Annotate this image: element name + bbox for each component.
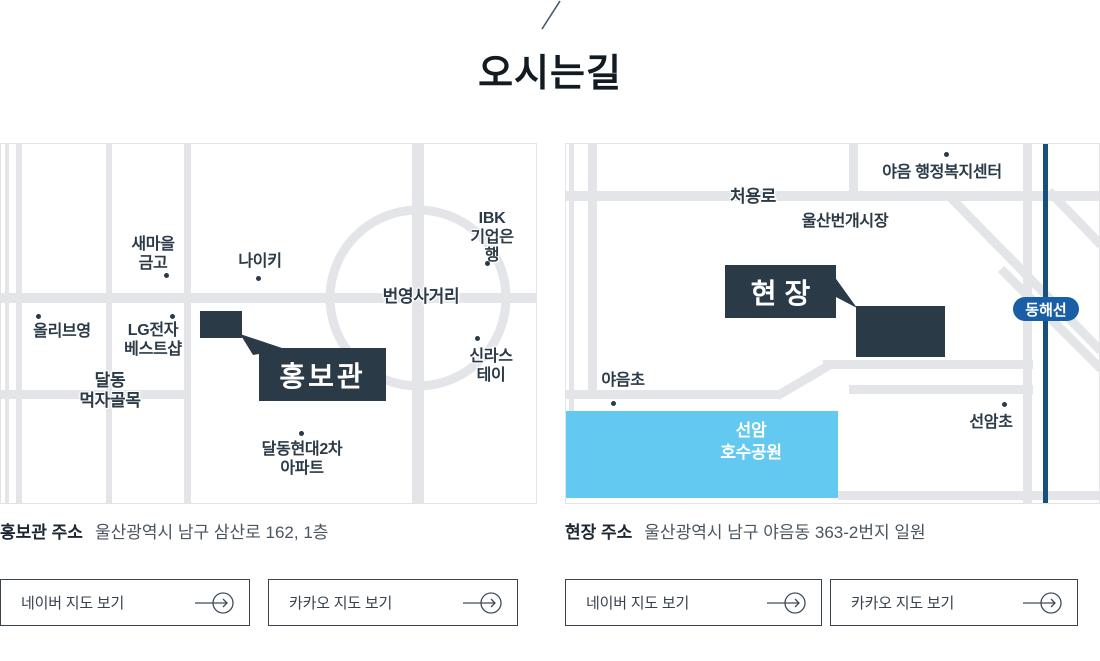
- poi-dot: [475, 336, 480, 341]
- page-title: 오시는길: [0, 42, 1100, 97]
- landmark-shilla-stay: 신라스테이: [469, 348, 514, 385]
- poi-dot: [36, 314, 41, 319]
- road-vertical: [849, 144, 858, 191]
- poi-dot: [256, 276, 261, 281]
- promo-hall-building: [200, 311, 242, 338]
- poi-dot: [1002, 402, 1007, 407]
- poi-dot: [611, 401, 616, 406]
- landmark-daldong-alley: 달동 먹자골목: [79, 371, 140, 410]
- site-building: [856, 306, 945, 357]
- promo-kakao-map-button[interactable]: 카카오 지도 보기: [268, 579, 518, 626]
- landmark-cheoyong-ro: 처용로: [730, 187, 776, 207]
- poi-dot: [299, 431, 304, 436]
- promo-address-label: 홍보관 주소: [0, 523, 83, 542]
- landmark-saemaeul: 새마을 금고: [131, 236, 174, 273]
- poi-dot: [170, 314, 175, 319]
- site-address: 현장 주소울산광역시 남구 야음동 363-2번지 일원: [565, 518, 926, 543]
- road-vertical: [106, 144, 112, 503]
- road-connector: [777, 366, 828, 396]
- site-callout-pointer: [834, 276, 857, 308]
- road-horizontal: [566, 390, 781, 399]
- landmark-nike: 나이키: [238, 253, 281, 272]
- promo-address-value: 울산광역시 남구 삼산로 162, 1층: [95, 523, 328, 542]
- button-label: 네이버 지도 보기: [586, 592, 689, 613]
- directions-section: 오시는길 새마을 금고 나이키 올리브영 LG전자 베스트샵 달동 먹자골목 I…: [0, 0, 1100, 661]
- road-vertical: [569, 144, 574, 411]
- seonam-lake-park-area: [566, 411, 838, 498]
- donghae-rail-line: [1043, 144, 1048, 503]
- decorative-slash: [533, 0, 565, 32]
- site-kakao-map-button[interactable]: 카카오 지도 보기: [830, 579, 1078, 626]
- button-label: 카카오 지도 보기: [289, 592, 392, 613]
- button-label: 카카오 지도 보기: [851, 592, 954, 613]
- landmark-lg-bestshop: LG전자 베스트샵: [124, 322, 182, 359]
- site-marker-label: 현장: [725, 265, 836, 318]
- landmark-seonam-lake-park: 선암 호수공원: [720, 420, 781, 464]
- road-vertical: [184, 144, 191, 503]
- landmark-welfare-center: 야음 행정복지센터: [882, 164, 1002, 183]
- landmark-oliveyoung: 올리브영: [33, 323, 91, 342]
- poi-dot: [485, 261, 490, 266]
- road-horizontal: [849, 385, 1033, 394]
- poi-dot: [944, 152, 949, 157]
- site-map: 야음 행정복지센터 처용로 울산번개시장 야음초 선암초 선암 호수공원 동해선…: [565, 143, 1100, 504]
- landmark-bungae-market: 울산번개시장: [802, 213, 889, 232]
- button-label: 네이버 지도 보기: [21, 592, 124, 613]
- site-naver-map-button[interactable]: 네이버 지도 보기: [565, 579, 822, 626]
- poi-dot: [164, 273, 169, 278]
- landmark-hyundai-apartment: 달동현대2차 아파트: [262, 441, 343, 478]
- road-horizontal: [838, 491, 1099, 500]
- road-cheoyongro: [566, 191, 1099, 201]
- road-vertical: [5, 144, 9, 503]
- promo-hall-address: 홍보관 주소울산광역시 남구 삼산로 162, 1층: [0, 518, 328, 543]
- road-vertical-main: [412, 144, 424, 503]
- arrow-circle-icon: [759, 592, 807, 614]
- site-address-value: 울산광역시 남구 야음동 363-2번지 일원: [644, 523, 925, 542]
- promo-naver-map-button[interactable]: 네이버 지도 보기: [0, 579, 250, 626]
- arrow-circle-icon: [455, 592, 503, 614]
- road-vertical: [588, 144, 597, 399]
- landmark-byeongyeong-intersection: 번영사거리: [383, 287, 460, 307]
- promo-hall-map: 새마을 금고 나이키 올리브영 LG전자 베스트샵 달동 먹자골목 IBK 기업…: [0, 143, 537, 504]
- donghae-line-badge: 동해선: [1013, 297, 1079, 321]
- landmark-ibk-bank: IBK 기업은행: [470, 210, 514, 266]
- arrow-circle-icon: [187, 592, 235, 614]
- promo-hall-marker-label: 홍보관: [259, 348, 386, 401]
- landmark-seonam-elementary: 선암초: [969, 414, 1012, 433]
- arrow-circle-icon: [1015, 592, 1063, 614]
- site-map-roads: [566, 144, 1099, 503]
- landmark-yaeum-elementary: 야음초: [601, 372, 644, 391]
- road-vertical: [16, 144, 22, 503]
- road-horizontal: [823, 360, 1033, 369]
- site-address-label: 현장 주소: [565, 523, 632, 542]
